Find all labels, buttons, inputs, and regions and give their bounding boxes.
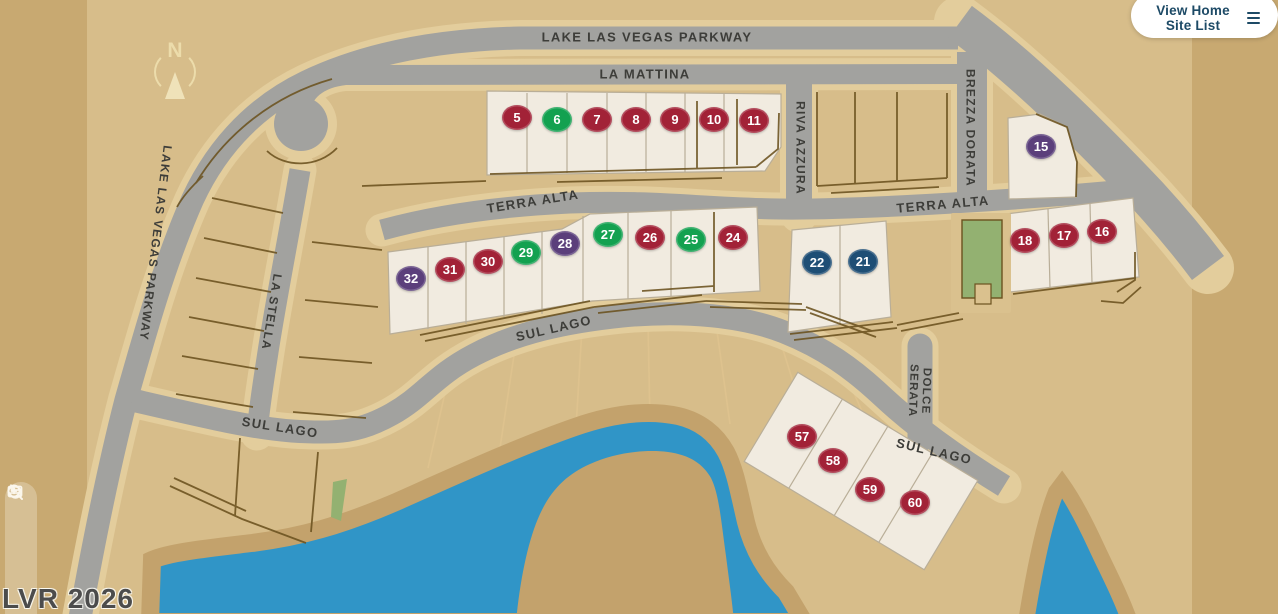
lot-marker-5[interactable]: 5 xyxy=(502,105,532,130)
lot-marker-16[interactable]: 16 xyxy=(1087,219,1117,244)
lot-marker-15[interactable]: 15 xyxy=(1026,134,1056,159)
lot-marker-layer: 5678910111516171821222425262728293031325… xyxy=(0,0,1278,614)
lot-marker-6[interactable]: 6 xyxy=(542,107,572,132)
lot-marker-24[interactable]: 24 xyxy=(718,225,748,250)
lot-marker-18[interactable]: 18 xyxy=(1010,228,1040,253)
lot-marker-26[interactable]: 26 xyxy=(635,225,665,250)
lot-marker-21[interactable]: 21 xyxy=(848,249,878,274)
lot-marker-31[interactable]: 31 xyxy=(435,257,465,282)
lot-marker-59[interactable]: 59 xyxy=(855,477,885,502)
reset-view-icon xyxy=(5,482,25,502)
lot-marker-58[interactable]: 58 xyxy=(818,448,848,473)
lot-marker-9[interactable]: 9 xyxy=(660,107,690,132)
lot-marker-10[interactable]: 10 xyxy=(699,107,729,132)
map-controls xyxy=(5,482,37,614)
reset-view-button[interactable] xyxy=(8,582,34,610)
community-site-map: LAKE LAS VEGAS PARKWAYLA MATTINARIVA AZZ… xyxy=(0,0,1278,614)
list-icon xyxy=(1247,7,1260,24)
lot-marker-57[interactable]: 57 xyxy=(787,424,817,449)
view-home-site-list-button[interactable]: View Home Site List xyxy=(1131,0,1278,38)
lot-marker-60[interactable]: 60 xyxy=(900,490,930,515)
lot-marker-28[interactable]: 28 xyxy=(550,231,580,256)
lot-marker-8[interactable]: 8 xyxy=(621,107,651,132)
zoom-out-button[interactable] xyxy=(8,551,34,579)
lot-marker-29[interactable]: 29 xyxy=(511,240,541,265)
lot-marker-7[interactable]: 7 xyxy=(582,107,612,132)
lot-marker-25[interactable]: 25 xyxy=(676,227,706,252)
lot-marker-17[interactable]: 17 xyxy=(1049,223,1079,248)
lot-marker-11[interactable]: 11 xyxy=(739,108,769,133)
lot-marker-22[interactable]: 22 xyxy=(802,250,832,275)
lot-marker-27[interactable]: 27 xyxy=(593,222,623,247)
lot-marker-30[interactable]: 30 xyxy=(473,249,503,274)
lot-marker-32[interactable]: 32 xyxy=(396,266,426,291)
view-home-site-list-label: View Home Site List xyxy=(1149,0,1237,33)
zoom-in-button[interactable] xyxy=(8,520,34,548)
